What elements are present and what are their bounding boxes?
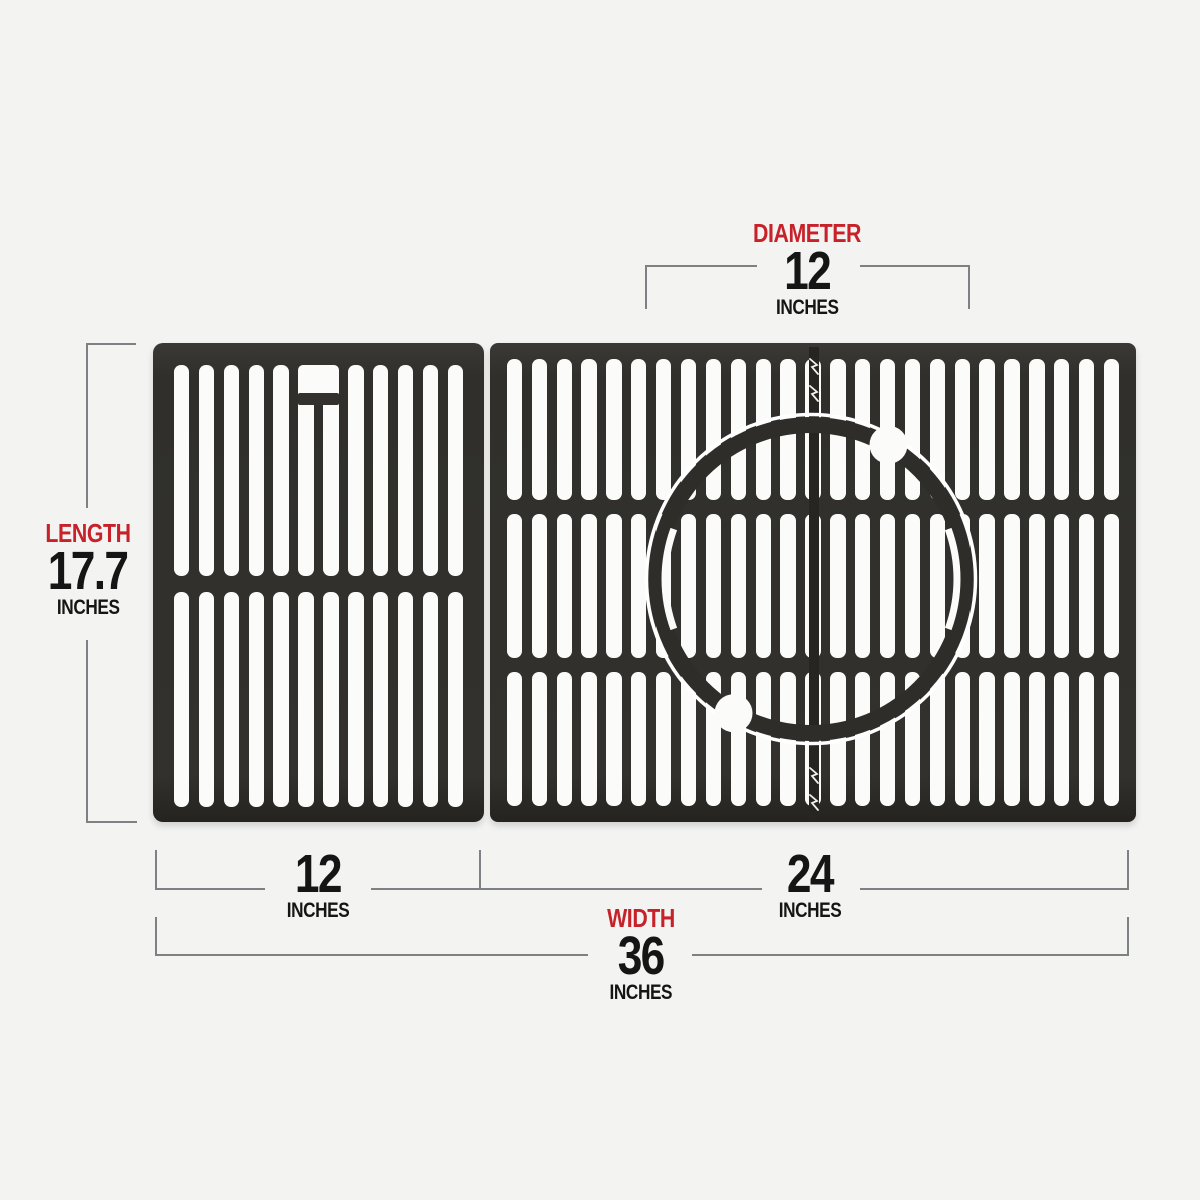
panel-dim-tick-right <box>1127 850 1129 890</box>
length-value: 17.7 <box>48 546 128 597</box>
diameter-dim-line-right <box>860 265 970 267</box>
total-width-measurement: WIDTH 36 INCHES <box>600 905 683 1003</box>
insert-lift-hole-bottom <box>715 694 753 732</box>
grate-slot <box>174 365 189 576</box>
insert-gap-ring <box>647 415 976 744</box>
grate-notch-bridge <box>298 393 339 405</box>
length-dim-line-top <box>86 343 88 508</box>
seam-interlock-mark <box>807 794 821 819</box>
grate-slot <box>606 672 621 806</box>
grate-slot <box>507 359 522 500</box>
insert-recess-left <box>665 529 674 629</box>
grate-slot <box>581 359 596 500</box>
left-panel-unit: INCHES <box>287 900 350 921</box>
grate-slot <box>1054 514 1069 658</box>
grate-slot <box>423 365 438 576</box>
grate-slot <box>557 359 572 500</box>
left-panel-value: 12 <box>295 849 341 900</box>
grate-slot <box>1004 514 1019 658</box>
grate-slot <box>979 672 994 806</box>
grate-slot <box>507 514 522 658</box>
grate-slot <box>507 672 522 806</box>
length-measurement: LENGTH 17.7 INCHES <box>36 520 140 618</box>
grate-slot <box>1029 672 1044 806</box>
length-dim-tick-bottom <box>86 821 137 823</box>
left-grill-grate <box>153 343 484 822</box>
grate-slot <box>174 592 189 807</box>
grate-slot <box>1054 359 1069 500</box>
grate-slot <box>348 592 363 807</box>
diameter-dim-tick-right <box>968 265 970 309</box>
grate-slot <box>581 514 596 658</box>
grate-slot <box>1104 359 1119 500</box>
right-grill-grate <box>490 343 1136 822</box>
grate-slot <box>532 514 547 658</box>
diameter-dim-tick-left <box>645 265 647 309</box>
grate-slot <box>273 592 288 807</box>
grate-slot <box>199 592 214 807</box>
width-dim-line-left <box>155 954 588 956</box>
grate-slot <box>1004 359 1019 500</box>
width-dim-tick-right <box>1127 917 1129 956</box>
diameter-measurement: DIAMETER 12 INCHES <box>741 220 873 318</box>
product-dimension-diagram: DIAMETER 12 INCHES LENGTH 17.7 INCHES 12… <box>0 0 1200 1200</box>
length-dim-tick-top <box>86 343 136 345</box>
panel-dim-line-2 <box>371 888 762 890</box>
grate-slot <box>373 592 388 807</box>
grate-slot <box>273 365 288 576</box>
length-dim-line-bottom <box>86 640 88 823</box>
width-dim-tick-left <box>155 917 157 956</box>
grate-slot <box>249 365 264 576</box>
grate-slot <box>1079 359 1094 500</box>
grate-slot <box>1079 514 1094 658</box>
grate-slot <box>398 365 413 576</box>
grate-slot <box>224 592 239 807</box>
grate-slot <box>557 514 572 658</box>
insert-ring-band <box>657 425 965 733</box>
grate-slot <box>979 359 994 500</box>
grate-slot <box>249 592 264 807</box>
grate-slot <box>606 359 621 500</box>
grate-slot <box>298 592 313 807</box>
round-searing-insert <box>641 409 981 754</box>
grate-slot <box>1104 514 1119 658</box>
seam-interlock-mark <box>807 358 821 383</box>
grate-slot <box>398 592 413 807</box>
seam-interlock-mark <box>807 767 821 792</box>
insert-recess-right <box>948 529 957 629</box>
width-dim-line-right <box>692 954 1128 956</box>
grate-slot <box>224 365 239 576</box>
grate-slot <box>606 514 621 658</box>
seam-interlock-mark <box>807 385 821 410</box>
right-panel-value: 24 <box>787 849 833 900</box>
grate-slot <box>1004 672 1019 806</box>
grate-slot <box>1029 514 1044 658</box>
grate-slot <box>1054 672 1069 806</box>
grate-slot <box>532 672 547 806</box>
width-value: 36 <box>618 931 664 982</box>
length-unit: INCHES <box>57 597 120 618</box>
grate-slot <box>1079 672 1094 806</box>
left-panel-measurement: 12 INCHES <box>280 849 356 921</box>
panel-dim-tick-left <box>155 850 157 890</box>
right-panel-unit: INCHES <box>779 900 842 921</box>
grate-slot <box>199 365 214 576</box>
grate-slot <box>448 592 463 807</box>
diameter-unit: INCHES <box>776 297 839 318</box>
grate-slot <box>373 365 388 576</box>
grate-slot <box>348 365 363 576</box>
grate-slot <box>423 592 438 807</box>
grate-slot <box>323 592 338 807</box>
grate-slot <box>1029 359 1044 500</box>
panel-dim-tick-middle <box>479 850 481 890</box>
grate-slot <box>532 359 547 500</box>
grate-slot <box>979 514 994 658</box>
right-panel-measurement: 24 INCHES <box>772 849 848 921</box>
panel-dim-line-1 <box>155 888 265 890</box>
grate-slot <box>557 672 572 806</box>
panel-dim-line-3 <box>860 888 1128 890</box>
grate-slot <box>448 365 463 576</box>
grate-slot <box>1104 672 1119 806</box>
insert-lift-hole-top <box>870 426 908 464</box>
width-unit: INCHES <box>610 982 673 1003</box>
grate-slot <box>581 672 596 806</box>
diameter-value: 12 <box>784 246 830 297</box>
grate-tool-notch <box>298 365 339 393</box>
